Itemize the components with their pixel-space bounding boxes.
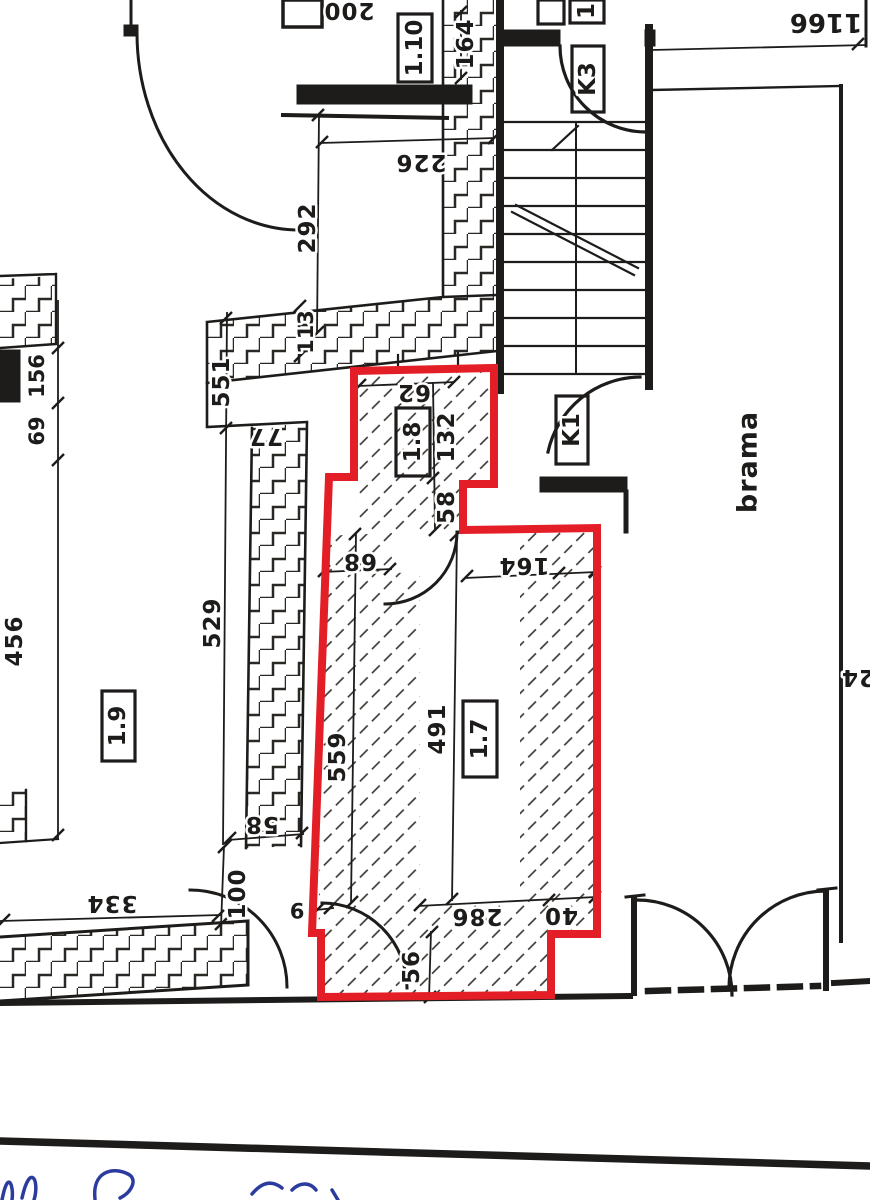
gate-label-brama: brama: [733, 411, 764, 513]
room-label-partial-1: 1: [574, 3, 600, 19]
room-label-18: 1.8: [400, 422, 426, 463]
dim-559: 559: [325, 731, 351, 782]
dim-156: 156: [25, 354, 49, 398]
dim-226: 226: [395, 149, 446, 175]
partial-box-top-left: [283, 0, 322, 27]
dim-286: 286: [451, 903, 502, 929]
dim-58-lower: 58: [245, 811, 279, 837]
dim-68: 68: [343, 548, 377, 574]
dim-551: 551: [209, 356, 235, 407]
room-label-19: 1.9: [105, 706, 131, 747]
dim-100: 100: [225, 868, 251, 919]
room-label-17: 1.7: [467, 719, 493, 760]
dim-132: 132: [434, 411, 460, 462]
dim-292: 292: [295, 202, 321, 253]
dim-58-niche: 58: [434, 490, 460, 524]
dim-24-edge: 24: [841, 664, 870, 690]
dim-164-inner: 164: [498, 552, 549, 578]
dim-334: 334: [86, 890, 137, 916]
stair-label-k3: K3: [575, 62, 601, 96]
dim-164-top: 164: [453, 18, 479, 69]
stair-label-k1: K1: [559, 413, 585, 447]
dim-1166: 1166: [790, 7, 862, 37]
dim-529: 529: [200, 597, 226, 648]
room-label-110: 1.10: [402, 20, 428, 77]
dim-113: 113: [294, 310, 318, 354]
handwritten-annotation: [2, 1171, 338, 1200]
partial-box-top: [538, 0, 564, 24]
scanned-floor-plan-page: 200 1166 164 226 292 113 551 77 156 69 6…: [0, 0, 870, 1200]
dim-9: 9: [290, 898, 305, 922]
dim-69: 69: [25, 416, 49, 445]
dim-56: 56: [399, 950, 425, 984]
dim-62: 62: [397, 379, 431, 405]
dim-456: 456: [2, 615, 28, 666]
dim-77: 77: [249, 423, 283, 449]
dim-491: 491: [425, 703, 451, 754]
dim-40: 40: [544, 902, 578, 928]
floor-plan-drawing: 200 1166 164 226 292 113 551 77 156 69 6…: [0, 0, 870, 1200]
dim-200-partial: 200: [323, 0, 374, 23]
